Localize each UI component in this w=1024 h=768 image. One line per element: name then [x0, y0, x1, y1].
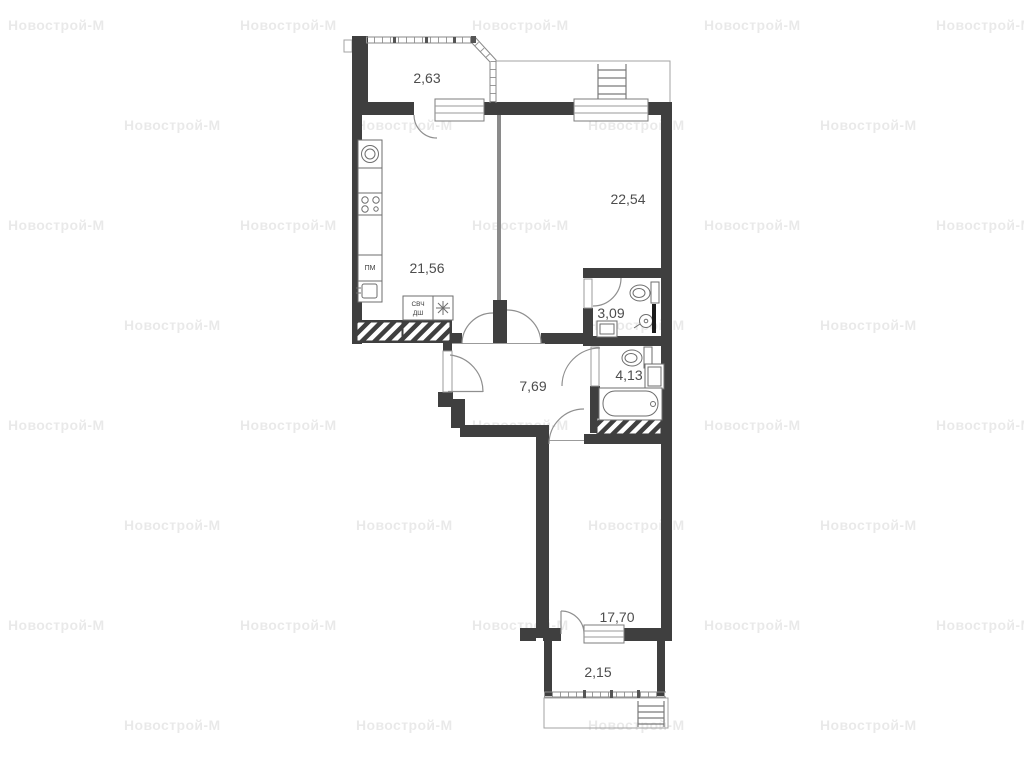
balcony-bottom-glazing — [544, 690, 666, 698]
door-arc-wc — [593, 278, 621, 306]
washer-icon — [597, 321, 617, 337]
room-label-wc: 3,09 — [597, 305, 624, 321]
door-arc-balcony-kitchen — [414, 115, 437, 138]
door-arc-living — [507, 310, 541, 344]
bedroom-window — [584, 625, 624, 643]
dishwasher-label: ПМ — [365, 265, 376, 272]
kitchen-counter — [358, 140, 382, 302]
vent-shaft-icon — [357, 322, 402, 341]
door-openings — [443, 279, 599, 441]
ladder-icon — [598, 64, 626, 99]
kitchen-window — [435, 99, 484, 121]
room-label-bedroom: 17,70 — [599, 609, 634, 625]
shower-icon — [634, 304, 656, 333]
room-label-balcony-bottom: 2,15 — [584, 664, 611, 680]
room-label-hall: 7,69 — [519, 378, 546, 394]
bathtub-icon — [599, 388, 662, 420]
walls — [352, 36, 672, 696]
door-arc-kitchen — [462, 313, 493, 344]
floor-plan: ПМ СВЧ ДШ — [0, 0, 1024, 768]
floor-plan-page: Новострой-МНовострой-МНовострой-МНовостр… — [0, 0, 1024, 768]
living-window — [574, 99, 648, 121]
door-arc-entrance — [450, 355, 483, 392]
room-label-living: 22,54 — [610, 191, 645, 207]
room-label-balcony-top: 2,63 — [413, 70, 440, 86]
room-label-kitchen: 21,56 — [409, 260, 444, 276]
vanity-sink-icon — [645, 364, 664, 389]
ladder-icon — [638, 701, 664, 727]
bathroom-fixtures — [599, 347, 664, 420]
microwave-oven-unit: СВЧ ДШ — [403, 296, 433, 320]
door-arc-bedroom — [549, 409, 584, 444]
fridge-snowflake-icon — [433, 296, 453, 320]
oven-label: ДШ — [413, 310, 423, 317]
partition-kitchen-living — [497, 115, 501, 302]
microwave-label: СВЧ — [411, 301, 424, 308]
door-arc-balcony-bedroom — [561, 611, 584, 634]
kitchen-fixtures: ПМ СВЧ ДШ — [356, 140, 453, 320]
room-label-bath: 4,13 — [615, 367, 642, 383]
vent-shaft-icon — [403, 322, 450, 341]
washing-machine-icon — [362, 146, 379, 163]
toilet-icon — [630, 282, 659, 303]
